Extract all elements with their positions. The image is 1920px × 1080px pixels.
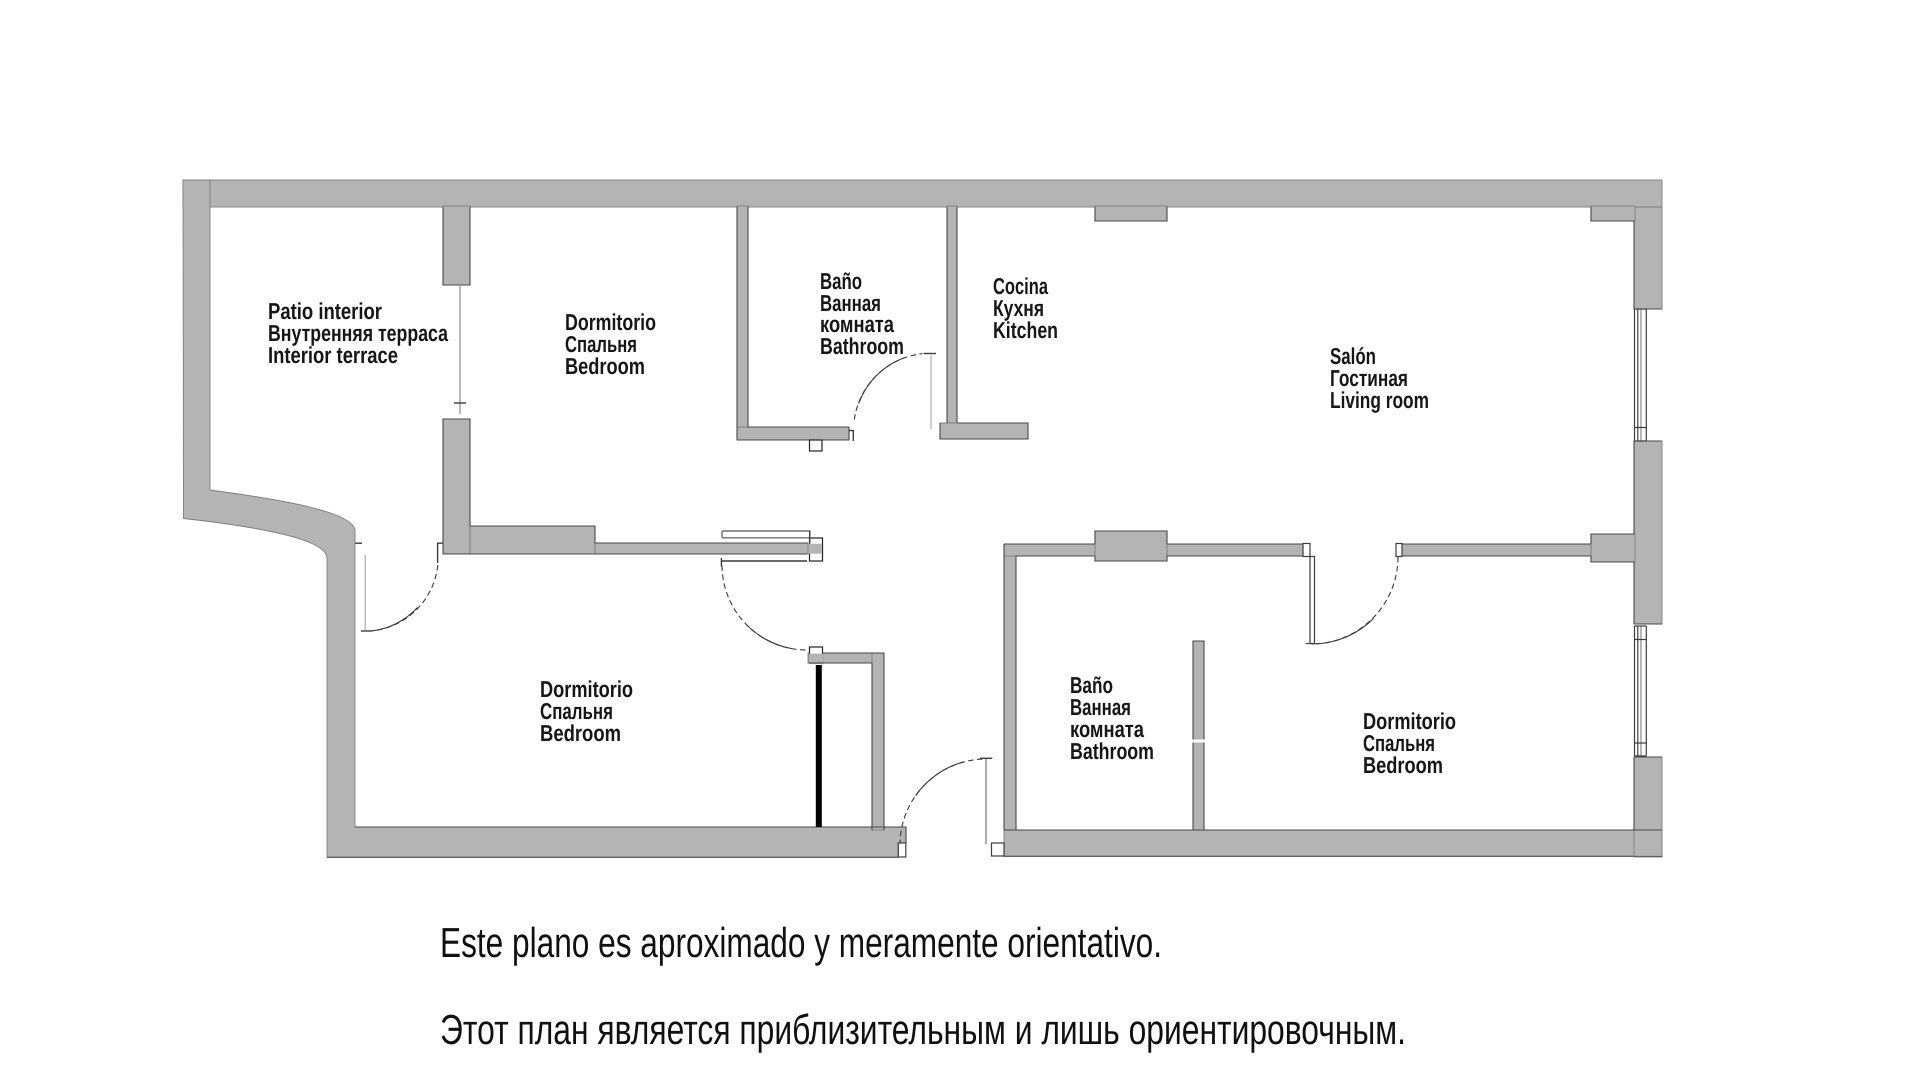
svg-text:Este plano es aproximado y mer: Este plano es aproximado y meramente ori… <box>440 919 1162 966</box>
svg-text:Bathroom: Bathroom <box>1070 738 1154 764</box>
svg-text:Этот план является приблизител: Этот план является приблизительным и лиш… <box>440 1006 1406 1053</box>
svg-text:Bedroom: Bedroom <box>565 353 645 379</box>
svg-text:Bathroom: Bathroom <box>820 333 904 359</box>
svg-text:Interior terrace: Interior terrace <box>268 342 398 368</box>
svg-text:Kitchen: Kitchen <box>993 317 1058 343</box>
svg-text:Bedroom: Bedroom <box>1363 752 1443 778</box>
svg-text:Living room: Living room <box>1330 387 1429 413</box>
svg-text:Bedroom: Bedroom <box>540 720 621 746</box>
